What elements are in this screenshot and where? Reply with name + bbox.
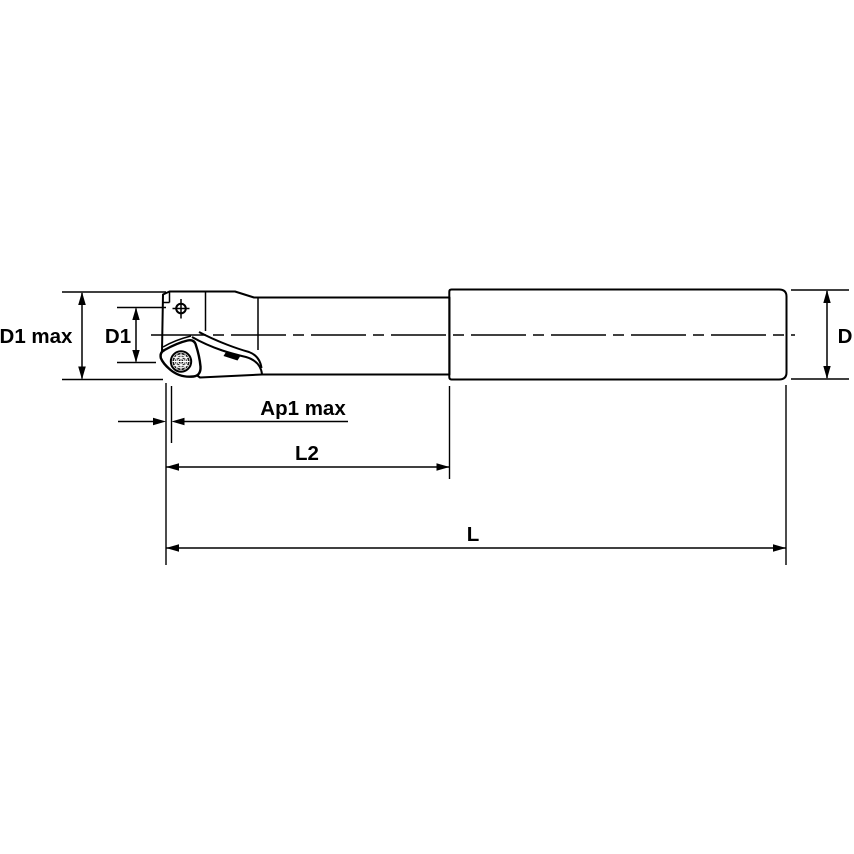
label-d1: D1 [105,325,131,348]
label-l2: L2 [295,442,319,465]
dim-l: L [166,385,786,565]
label-l: L [467,523,480,546]
page: D1 max D1 D Ap1 max L2 [0,0,854,854]
flute-edge-inner [199,332,262,368]
label-d1-max: D1 max [0,325,73,348]
end-mill-technical-drawing: D1 max D1 D Ap1 max L2 [0,0,854,854]
insert-screw-icon [171,351,191,371]
label-ap1-max: Ap1 max [260,397,346,420]
clamp-screw-icon [173,299,190,319]
dim-ap1-max: Ap1 max [118,383,348,565]
dim-d1-max: D1 max [0,292,166,380]
dim-d: D [791,290,852,379]
label-d: D [838,325,853,348]
